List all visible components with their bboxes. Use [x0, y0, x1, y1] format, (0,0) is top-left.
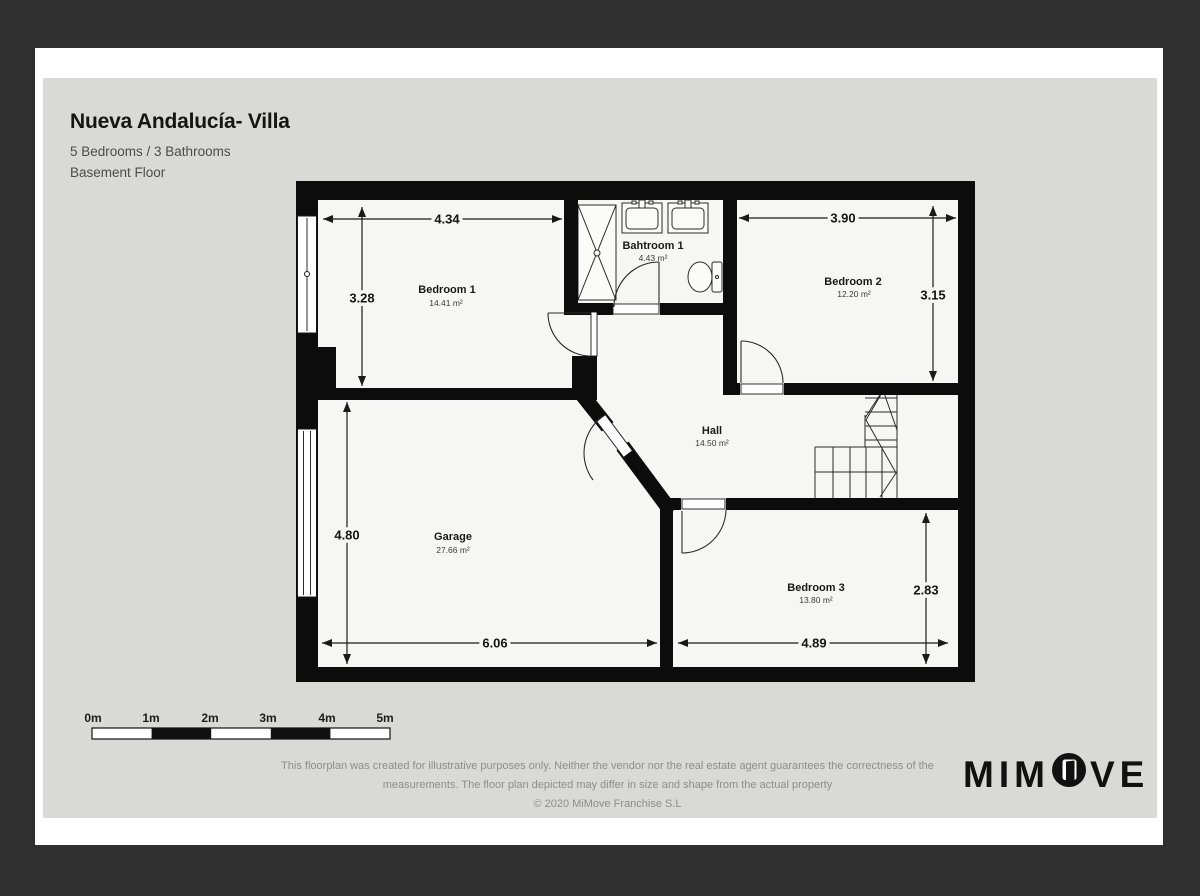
scale-label-1: 1m — [142, 711, 159, 725]
room-bedroom2-label: Bedroom 2 — [824, 276, 881, 288]
plan-floor — [296, 181, 975, 682]
shower-icon — [578, 205, 616, 300]
room-garage-label: Garage — [434, 531, 472, 543]
room-bedroom3-area: 13.80 m² — [799, 595, 833, 605]
room-garage-area: 27.66 m² — [436, 545, 470, 555]
window-bedroom1 — [298, 216, 317, 333]
room-hall-area: 14.50 m² — [695, 438, 729, 448]
room-bathroom1-area: 4.43 m² — [639, 253, 668, 263]
disclaimer-line-1: This floorplan was created for illustrat… — [270, 757, 945, 776]
scale-label-3: 3m — [259, 711, 276, 725]
mimove-door-icon — [1051, 752, 1087, 797]
window-garage — [298, 429, 317, 597]
room-bedroom1-area: 14.41 m² — [429, 298, 463, 308]
sink-icon — [668, 200, 708, 233]
room-hall-label: Hall — [702, 425, 722, 437]
disclaimer-line-2: measurements. The floor plan depicted ma… — [270, 776, 945, 795]
dim-bedroom2-height: 3.15 — [920, 288, 945, 303]
scale-label-0: 0m — [84, 711, 101, 725]
mimove-logo: MIM VE — [963, 752, 1149, 797]
copyright-line: © 2020 MiMove Franchise S.L — [270, 795, 945, 814]
outer-frame: Nueva Andalucía- Villa 5 Bedrooms / 3 Ba… — [0, 0, 1200, 896]
logo-text-left: MIM — [963, 754, 1050, 796]
sink-icon — [622, 200, 662, 233]
toilet-icon — [688, 262, 722, 292]
scale-label-2: 2m — [201, 711, 218, 725]
room-bathroom1-label: Bahtroom 1 — [622, 240, 683, 252]
scale-label-5: 5m — [376, 711, 393, 725]
dim-bedroom2-width: 3.90 — [830, 211, 855, 226]
dim-bedroom3-height: 2.83 — [913, 583, 938, 598]
dim-bedroom1-height: 3.28 — [349, 291, 374, 306]
dim-garage-height: 4.80 — [334, 528, 359, 543]
room-bedroom2-area: 12.20 m² — [837, 289, 871, 299]
scale-label-4: 4m — [318, 711, 335, 725]
room-bedroom3-label: Bedroom 3 — [787, 582, 844, 594]
dim-bedroom3-width: 4.89 — [801, 636, 826, 651]
dim-garage-width: 6.06 — [482, 636, 507, 651]
disclaimer: This floorplan was created for illustrat… — [270, 757, 945, 814]
logo-text-right: VE — [1090, 754, 1149, 796]
dim-bedroom1-width: 4.34 — [434, 212, 460, 227]
room-bedroom1-label: Bedroom 1 — [418, 284, 475, 296]
scale-bar: 0m 1m 2m 3m 4m 5m — [84, 711, 393, 739]
